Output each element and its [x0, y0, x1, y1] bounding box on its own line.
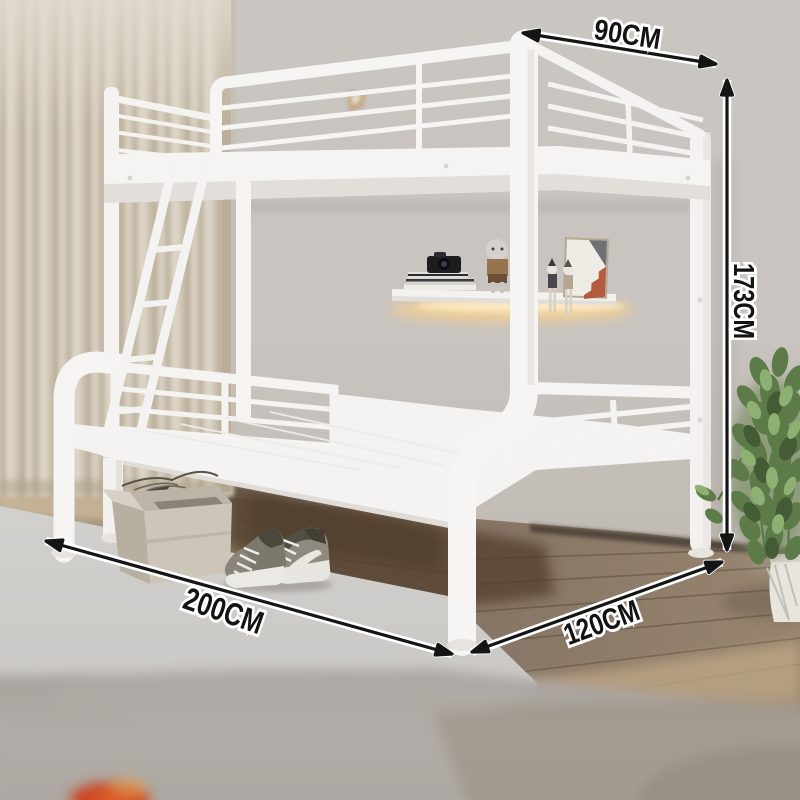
svg-text:173CM: 173CM [727, 263, 759, 339]
